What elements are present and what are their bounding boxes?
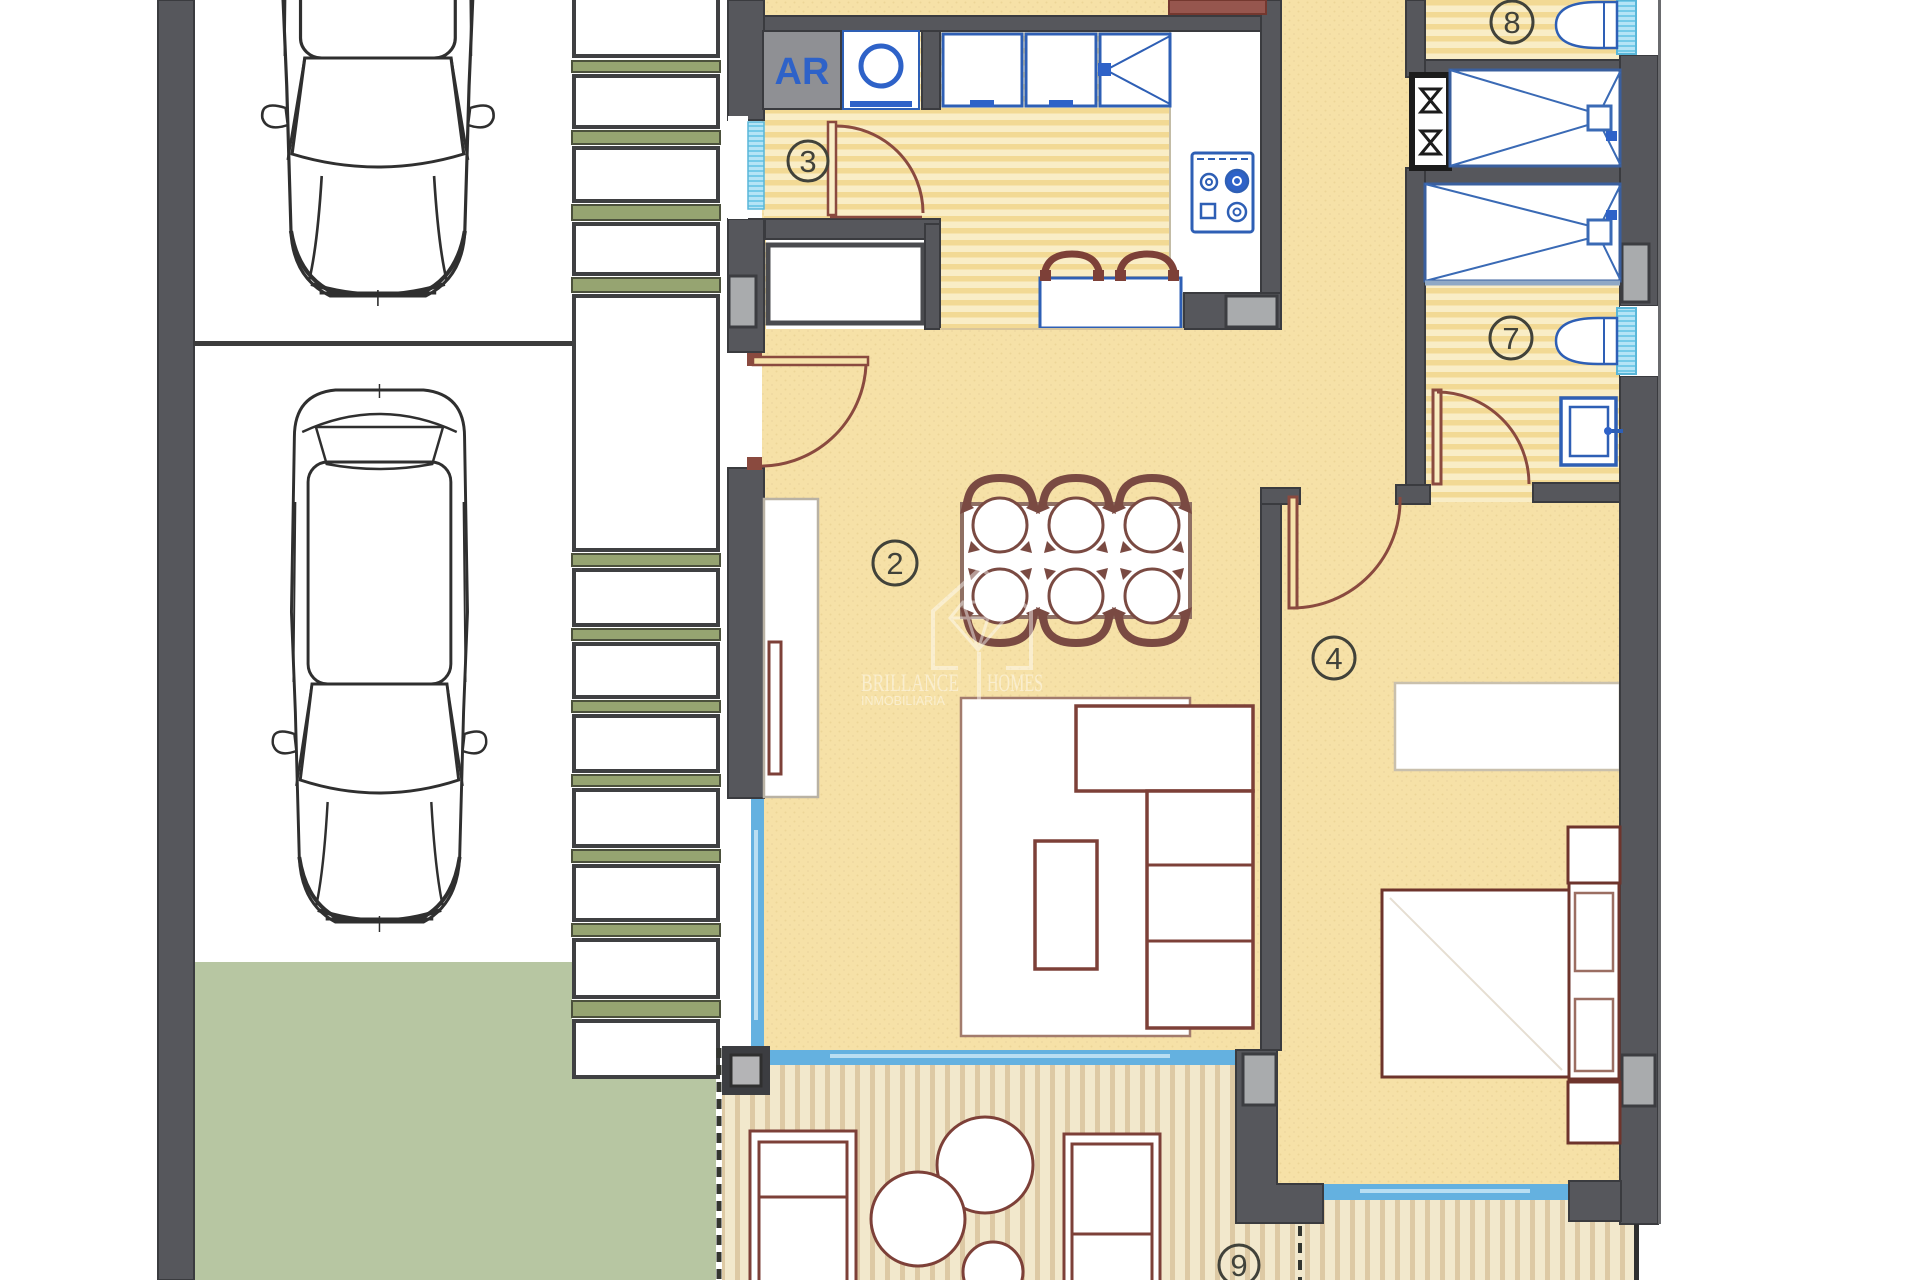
svg-text:7: 7: [1502, 321, 1519, 356]
svg-text:4: 4: [1325, 641, 1342, 676]
svg-text:8: 8: [1503, 5, 1520, 40]
svg-text:2: 2: [886, 546, 903, 581]
svg-text:9: 9: [1230, 1248, 1247, 1280]
svg-text:INMOBILIARIA: INMOBILIARIA: [861, 693, 945, 708]
svg-text:AR: AR: [775, 51, 830, 93]
svg-text:3: 3: [799, 144, 816, 179]
svg-text:HOMES: HOMES: [987, 670, 1043, 697]
